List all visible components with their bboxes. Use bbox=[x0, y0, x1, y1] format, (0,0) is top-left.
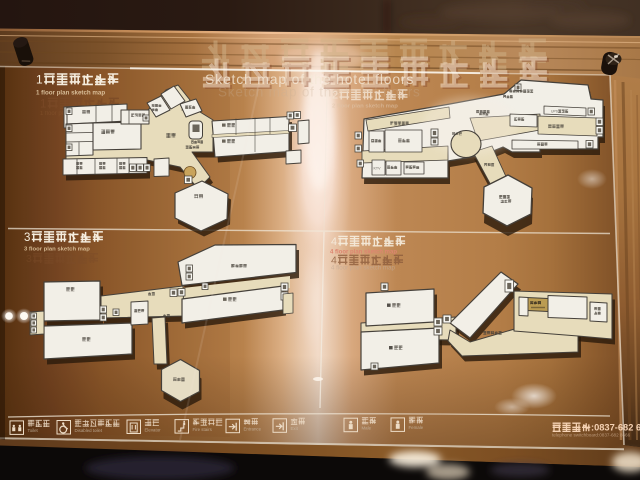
svg-text:2 floor plan sketch map: 2 floor plan sketch map bbox=[332, 104, 398, 110]
svg-text:Exit: Exit bbox=[291, 426, 299, 431]
svg-text:UPS: UPS bbox=[551, 110, 559, 114]
svg-text:2: 2 bbox=[332, 90, 338, 102]
svg-text:Disabled toilet: Disabled toilet bbox=[75, 428, 103, 433]
svg-text:3 floor plan sketch map: 3 floor plan sketch map bbox=[24, 247, 90, 253]
svg-text:Male: Male bbox=[362, 426, 372, 431]
svg-text:4: 4 bbox=[331, 236, 337, 248]
svg-text:3: 3 bbox=[24, 232, 30, 244]
svg-text:3: 3 bbox=[26, 253, 32, 265]
svg-text:Elevator: Elevator bbox=[145, 427, 162, 432]
svg-text:Female: Female bbox=[409, 425, 424, 430]
svg-text:Entrance: Entrance bbox=[244, 427, 262, 432]
svg-text:Toilet: Toilet bbox=[28, 428, 39, 433]
svg-text::0837-682 666: :0837-682 666 bbox=[591, 423, 640, 433]
svg-text:1 floor plan sketch map: 1 floor plan sketch map bbox=[36, 90, 105, 97]
svg-text:1: 1 bbox=[36, 72, 43, 86]
svg-text:telephone switchboard:0837-682: telephone switchboard:0837-682 8666 bbox=[552, 433, 631, 438]
svg-text:Fire stairs: Fire stairs bbox=[193, 427, 213, 432]
svg-text:4 floor plan sketch map: 4 floor plan sketch map bbox=[331, 265, 396, 272]
svg-text:1: 1 bbox=[40, 98, 46, 110]
svg-text:KTV: KTV bbox=[374, 167, 382, 171]
